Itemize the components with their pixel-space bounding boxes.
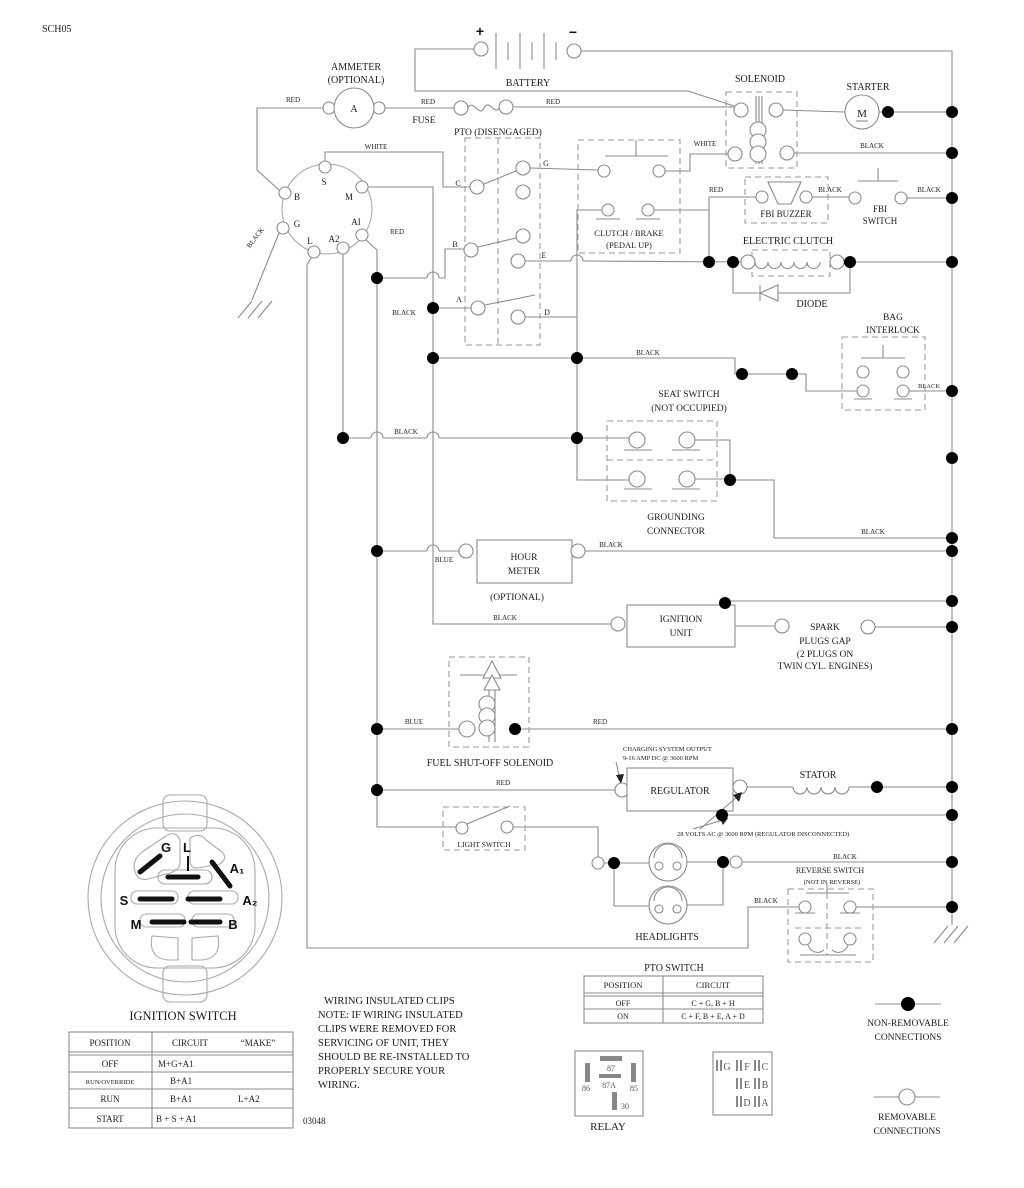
note-line-2: NOTE: IF WIRING INSULATED: [318, 1010, 463, 1021]
wire-label-black-ground: BLACK: [861, 528, 885, 536]
plug-pin-b: B: [228, 917, 237, 932]
conn-pin-d: D: [743, 1098, 750, 1109]
plug-pin-l: L: [183, 840, 191, 855]
fuse-label: FUSE: [412, 116, 435, 126]
pto-contact-d: D: [544, 308, 550, 317]
conn-pin-a: A: [761, 1098, 769, 1109]
relay-label: RELAY: [590, 1121, 626, 1133]
hour-meter-label-1: HOUR: [511, 553, 539, 563]
hour-meter-label-2: METER: [508, 567, 541, 577]
note-line-3: CLIPS WERE REMOVED FOR: [318, 1024, 456, 1035]
charging-note-1: CHARGING SYSTEM OUTPUT: [623, 746, 712, 753]
starter-label: STARTER: [846, 82, 889, 93]
battery-minus-sign: −: [569, 24, 577, 40]
seat-switch-symbol: SEAT SWITCH (NOT OCCUPIED) GROUNDING CON…: [394, 390, 885, 537]
note-line-5: SHOULD BE RE-INSTALLED TO: [318, 1052, 470, 1063]
fbi-switch-symbol: FBI SWITCH BLACK: [849, 168, 941, 226]
electric-clutch-label: ELECTRIC CLUTCH: [743, 236, 833, 247]
wire-label-red-fuel: RED: [593, 718, 607, 726]
wiring-schematic-page: + − BATTERY A AMMETER (OPTIONAL) FUSE RE…: [0, 0, 1024, 1188]
stator-label: STATOR: [800, 770, 837, 781]
solenoid-label: SOLENOID: [735, 74, 785, 85]
legend-nonremovable: NON-REMOVABLE CONNECTIONS: [867, 997, 949, 1043]
wire-label-black-head: BLACK: [833, 853, 857, 861]
ign-table-r4-pos: START: [96, 1114, 124, 1124]
pto-contact-a: A: [456, 295, 462, 304]
terminal-g: G: [294, 219, 301, 229]
terminal-m: M: [345, 192, 353, 202]
plug-pin-m: M: [131, 917, 142, 932]
pto-switch-table: PTO SWITCH POSITION CIRCUIT OFF C + G, B…: [584, 963, 763, 1023]
hour-meter-label-3: (OPTIONAL): [490, 592, 544, 603]
fbi-switch-label-1: FBI: [873, 204, 887, 214]
headlights-label: HEADLIGHTS: [635, 932, 698, 943]
ignition-plug-title: IGNITION SWITCH: [129, 1009, 236, 1023]
plug-pin-a1: A₁: [230, 861, 245, 876]
ammeter-a: A: [350, 104, 358, 115]
legend-removable-2: CONNECTIONS: [873, 1127, 940, 1137]
pto-contact-g: G: [543, 159, 549, 168]
pto-contact-c: C: [455, 179, 460, 188]
plug-pin-g: G: [161, 840, 171, 855]
plug-pin-s: S: [120, 893, 129, 908]
wire-label-black-seat: BLACK: [394, 428, 418, 436]
ignition-switch-circle: S M B G AI A2 L BLACK RED: [245, 161, 404, 258]
note-line-4: SERVICING OF UNIT, THEY: [318, 1038, 450, 1049]
bag-interlock-label-1: BAG: [883, 313, 903, 323]
fuel-solenoid-label: FUEL SHUT-OFF SOLENOID: [427, 758, 554, 769]
seat-switch-label-2: (NOT OCCUPIED): [651, 403, 727, 414]
spark-label-3: (2 PLUGS ON: [797, 649, 854, 660]
legend-nonremovable-2: CONNECTIONS: [874, 1033, 941, 1043]
conn-pin-f: F: [744, 1062, 750, 1073]
connector-block: G F C E B D A: [713, 1052, 772, 1115]
fbi-switch-label-2: SWITCH: [863, 216, 898, 226]
light-switch-label: LIGHT SWITCH: [458, 840, 512, 849]
terminal-l: L: [307, 236, 313, 246]
ign-table-r3-pos: RUN: [100, 1094, 120, 1104]
reverse-switch-symbol: REVERSE SWITCH (NOT IN REVERSE) BLACK: [754, 866, 873, 962]
pto-table-r1-circ: C + G, B + H: [691, 999, 734, 1008]
battery-symbol: + − BATTERY: [474, 23, 581, 89]
wire-label-black-gnd: BLACK: [245, 226, 266, 250]
clutch-brake-symbol: CLUTCH / BRAKE (PEDAL UP): [578, 140, 680, 253]
ignition-unit-label-2: UNIT: [670, 629, 693, 639]
wire-label-black-buzzer: BLACK: [818, 186, 842, 194]
ignition-unit-symbol: IGNITION UNIT BLACK: [493, 605, 735, 647]
conn-pin-b: B: [762, 1080, 769, 1091]
ign-table-h-circ: CIRCUIT: [172, 1038, 209, 1048]
wire-label-blue-fuel: BLUE: [405, 718, 423, 726]
relay-pin-85: 85: [630, 1084, 638, 1093]
pto-table-r1-pos: OFF: [616, 999, 631, 1008]
wire-label-white-1: WHITE: [365, 143, 388, 151]
clutch-brake-label-1: CLUTCH / BRAKE: [594, 228, 663, 238]
spark-plugs-symbol: SPARK PLUGS GAP (2 PLUGS ON TWIN CYL. EN…: [775, 619, 875, 672]
legend-nonremovable-1: NON-REMOVABLE: [867, 1019, 949, 1029]
battery-plus-sign: +: [476, 23, 484, 39]
pto-table-h-pos: POSITION: [604, 980, 643, 990]
ign-table-r2-c1: B+A1: [170, 1076, 192, 1086]
relay-symbol: 87 87A 86 85 30 RELAY: [575, 1051, 643, 1133]
diode-symbol: DIODE: [760, 285, 828, 310]
wire-label-red-buzzer: RED: [709, 186, 723, 194]
relay-pin-87: 87: [607, 1064, 615, 1073]
pto-contact-e: E: [542, 251, 547, 260]
conn-pin-e: E: [744, 1080, 750, 1091]
schematic-canvas: + − BATTERY A AMMETER (OPTIONAL) FUSE RE…: [0, 0, 1024, 1188]
pto-switch-symbol: C B A G E D BLACK: [392, 138, 550, 345]
starter-symbol: M STARTER: [845, 82, 890, 129]
ign-table-r1-c1: M+G+A1: [158, 1059, 194, 1069]
wire-label-black-hour: BLACK: [599, 541, 623, 549]
wire-label-black-unit: BLACK: [493, 614, 517, 622]
relay-pin-86: 86: [582, 1084, 590, 1093]
terminal-a1: AI: [351, 217, 361, 227]
ign-table-r3-c1: B+A1: [170, 1094, 192, 1104]
grounding-label-2: CONNECTOR: [647, 527, 706, 537]
wire-label-black-pto-a: BLACK: [392, 309, 416, 317]
wiring-note: WIRING INSULATED CLIPS NOTE: IF WIRING I…: [318, 996, 470, 1091]
spark-label-2: PLUGS GAP: [799, 637, 850, 647]
bag-interlock-label-2: INTERLOCK: [866, 326, 920, 336]
reverse-switch-label-1: REVERSE SWITCH: [796, 866, 864, 875]
pto-table-title: PTO SWITCH: [644, 963, 704, 974]
legend-removable-1: REMOVABLE: [878, 1113, 936, 1123]
relay-pin-30: 30: [621, 1102, 629, 1111]
pto-table-r2-pos: ON: [617, 1012, 629, 1021]
fuel-solenoid-symbol: FUEL SHUT-OFF SOLENOID BLUE RED: [405, 657, 607, 769]
terminal-a2: A2: [329, 234, 340, 244]
relay-pin-87a: 87A: [602, 1081, 616, 1090]
ignition-plug-drawing: G L A₁ A₂ S M B IGNITION SWITCH: [88, 795, 282, 1023]
doc-code: SCH05: [42, 24, 71, 35]
pto-contact-b: B: [452, 240, 457, 249]
wire-label-red-2: RED: [421, 98, 435, 106]
ammeter-label-2: (OPTIONAL): [328, 75, 385, 86]
plug-pin-a2: A₂: [242, 893, 257, 908]
wire-label-black-sol: BLACK: [860, 142, 884, 150]
footer-code: 03048: [303, 1116, 326, 1126]
ign-table-r1-pos: OFF: [102, 1059, 119, 1069]
fbi-buzzer-label: FBI BUZZER: [760, 209, 811, 219]
legend-removable: REMOVABLE CONNECTIONS: [873, 1089, 940, 1137]
note-line-7: WIRING.: [318, 1080, 360, 1091]
ignition-unit-label-1: IGNITION: [660, 615, 703, 625]
pto-header-label: PTO (DISENGAGED): [454, 127, 542, 138]
light-switch-symbol: LIGHT SWITCH: [443, 806, 525, 850]
conn-pin-g: G: [723, 1062, 730, 1073]
ammeter-label-1: AMMETER: [331, 62, 381, 73]
pto-table-h-circ: CIRCUIT: [696, 980, 731, 990]
ammeter-symbol: A AMMETER (OPTIONAL): [323, 62, 385, 128]
pto-table-r2-circ: C + F, B + E, A + D: [681, 1012, 745, 1021]
wire-label-blue-hour: BLUE: [435, 556, 453, 564]
terminal-b: B: [294, 192, 300, 202]
regulator-label: REGULATOR: [650, 786, 710, 797]
battery-label: BATTERY: [506, 78, 550, 89]
ign-table-r2-pos: RUN/OVERRIDE: [86, 1079, 134, 1086]
note-line-1: WIRING INSULATED CLIPS: [324, 996, 455, 1007]
wire-label-red-reg: RED: [496, 779, 510, 787]
conn-pin-c: C: [762, 1062, 769, 1073]
wire-label-white-2: WHITE: [694, 140, 717, 148]
seat-switch-label-1: SEAT SWITCH: [658, 390, 719, 400]
ign-table-r3-c2: L+A2: [238, 1094, 260, 1104]
wire-label-red-1: RED: [286, 96, 300, 104]
wire-label-black-rev: BLACK: [754, 897, 778, 905]
ignition-switch-table: POSITION CIRCUIT “MAKE” OFF M+G+A1 RUN/O…: [69, 1032, 293, 1128]
hour-meter-symbol: HOUR METER (OPTIONAL) BLUE BLACK: [435, 540, 623, 603]
charging-note-2: 9-16 AMP DC @ 3600 RPM: [623, 755, 698, 762]
wire-label-black-fbi: BLACK: [917, 186, 941, 194]
note-line-6: PROPERLY SECURE YOUR: [318, 1066, 445, 1077]
fbi-buzzer-symbol: FBI BUZZER RED BLACK: [709, 177, 842, 223]
starter-m: M: [857, 108, 867, 120]
diode-label: DIODE: [796, 299, 827, 310]
electric-clutch-symbol: ELECTRIC CLUTCH: [741, 236, 844, 276]
volts-note: 28 VOLTS AC @ 3600 RPM (REGULATOR DISCON…: [677, 831, 849, 838]
grounding-label-1: GROUNDING: [647, 513, 705, 523]
wire-label-red-a1: RED: [390, 228, 404, 236]
spark-label-1: SPARK: [810, 623, 840, 633]
spark-label-4: TWIN CYL. ENGINES): [778, 661, 873, 672]
terminal-s: S: [321, 177, 326, 187]
ign-table-h-make: “MAKE”: [241, 1038, 276, 1048]
ign-table-h-pos: POSITION: [89, 1038, 131, 1048]
wires: [238, 49, 968, 948]
wire-label-black-mid: BLACK: [636, 349, 660, 357]
clutch-brake-label-2: (PEDAL UP): [606, 240, 652, 250]
wire-label-black-bag: BLACK: [918, 383, 940, 390]
ign-table-r4-c1: B + S + A1: [156, 1114, 197, 1124]
reverse-switch-label-2: (NOT IN REVERSE): [804, 879, 861, 886]
wire-label-red-3: RED: [546, 98, 560, 106]
